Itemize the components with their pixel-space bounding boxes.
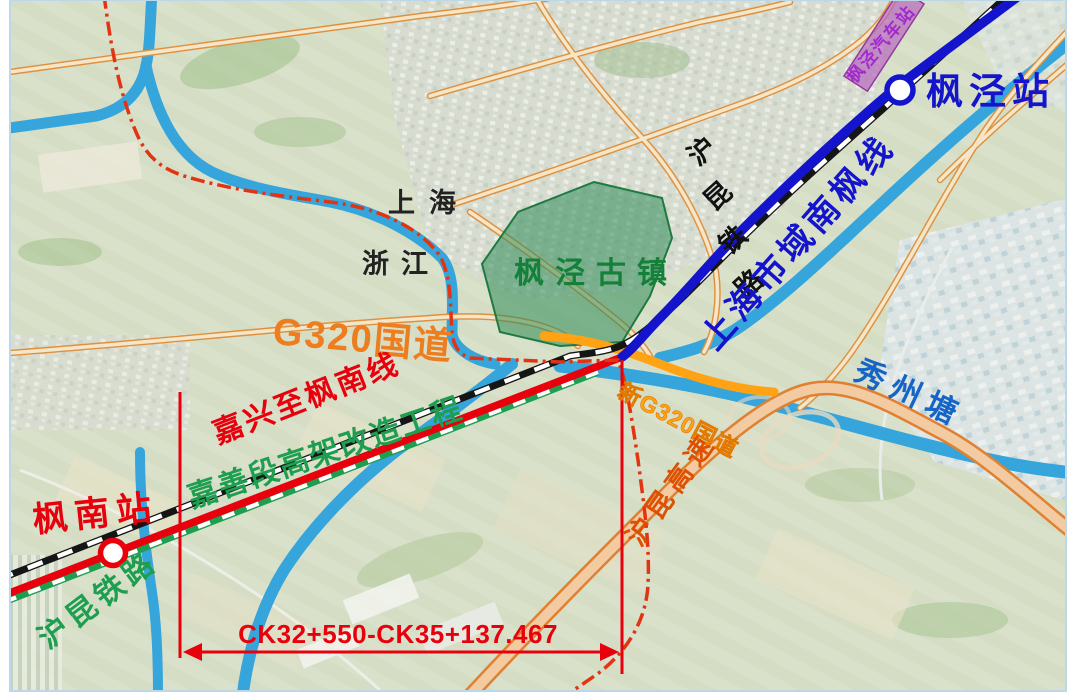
map-canvas: CK32+550-CK35+137.467 枫泾站 沪 昆 铁 路 上海市域南枫… bbox=[0, 0, 1080, 699]
fengjing-station-marker bbox=[887, 77, 913, 103]
chainage-label: CK32+550-CK35+137.467 bbox=[238, 619, 558, 649]
ancient-town-label: 枫泾古镇 bbox=[514, 257, 678, 290]
shanghai-label: 上海 bbox=[388, 188, 470, 218]
zhejiang-label: 浙江 bbox=[362, 249, 440, 279]
map-screenshot: CK32+550-CK35+137.467 枫泾站 沪 昆 铁 路 上海市域南枫… bbox=[0, 0, 1080, 699]
fengjing-station-label: 枫泾站 bbox=[926, 71, 1055, 112]
